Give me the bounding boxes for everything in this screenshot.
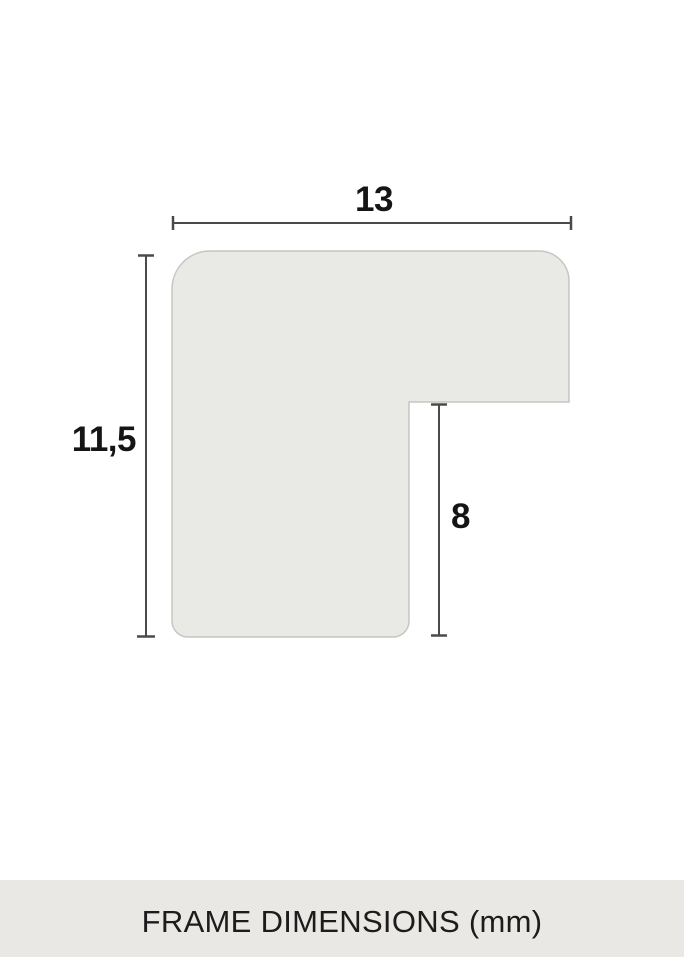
height-dimension-label: 11,5 (36, 422, 136, 458)
frame-profile-shape (172, 251, 569, 637)
rabbet-dimension-line (431, 404, 447, 636)
footer-caption: FRAME DIMENSIONS (mm) (142, 905, 543, 939)
footer-caption-bar: FRAME DIMENSIONS (mm) (0, 880, 684, 957)
width-dimension-label: 13 (324, 182, 424, 218)
rabbet-dimension-label: 8 (451, 499, 511, 535)
frame-dimensions-page: 13 11,5 8 FRAME DIMENSIONS (mm) (0, 0, 684, 957)
height-dimension-line (137, 255, 155, 637)
